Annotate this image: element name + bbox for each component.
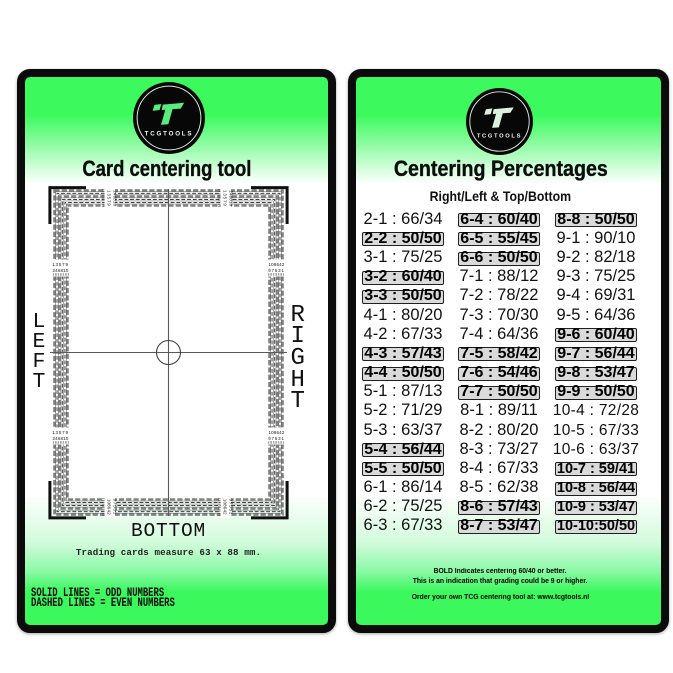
svg-text:108642: 108642	[269, 430, 285, 435]
svg-text:13579: 13579	[223, 190, 228, 207]
svg-text:108642: 108642	[223, 499, 228, 515]
svg-text:97531: 97531	[229, 499, 234, 516]
svg-text:TCGTOOLS: TCGTOOLS	[477, 134, 522, 140]
svg-text:13579: 13579	[52, 430, 69, 435]
svg-text:97531: 97531	[113, 499, 118, 516]
svg-text:246810: 246810	[53, 268, 69, 273]
svg-text:246810: 246810	[113, 190, 118, 206]
svg-text:246810: 246810	[229, 190, 234, 206]
svg-text:246810: 246810	[53, 436, 69, 441]
svg-text:13579: 13579	[107, 190, 112, 207]
svg-text:13579: 13579	[52, 262, 69, 267]
svg-text:108642: 108642	[107, 499, 112, 515]
svg-text:97531: 97531	[268, 268, 285, 273]
svg-text:108642: 108642	[269, 262, 285, 267]
svg-text:97531: 97531	[268, 436, 285, 441]
svg-text:TCGTOOLS: TCGTOOLS	[145, 130, 194, 137]
